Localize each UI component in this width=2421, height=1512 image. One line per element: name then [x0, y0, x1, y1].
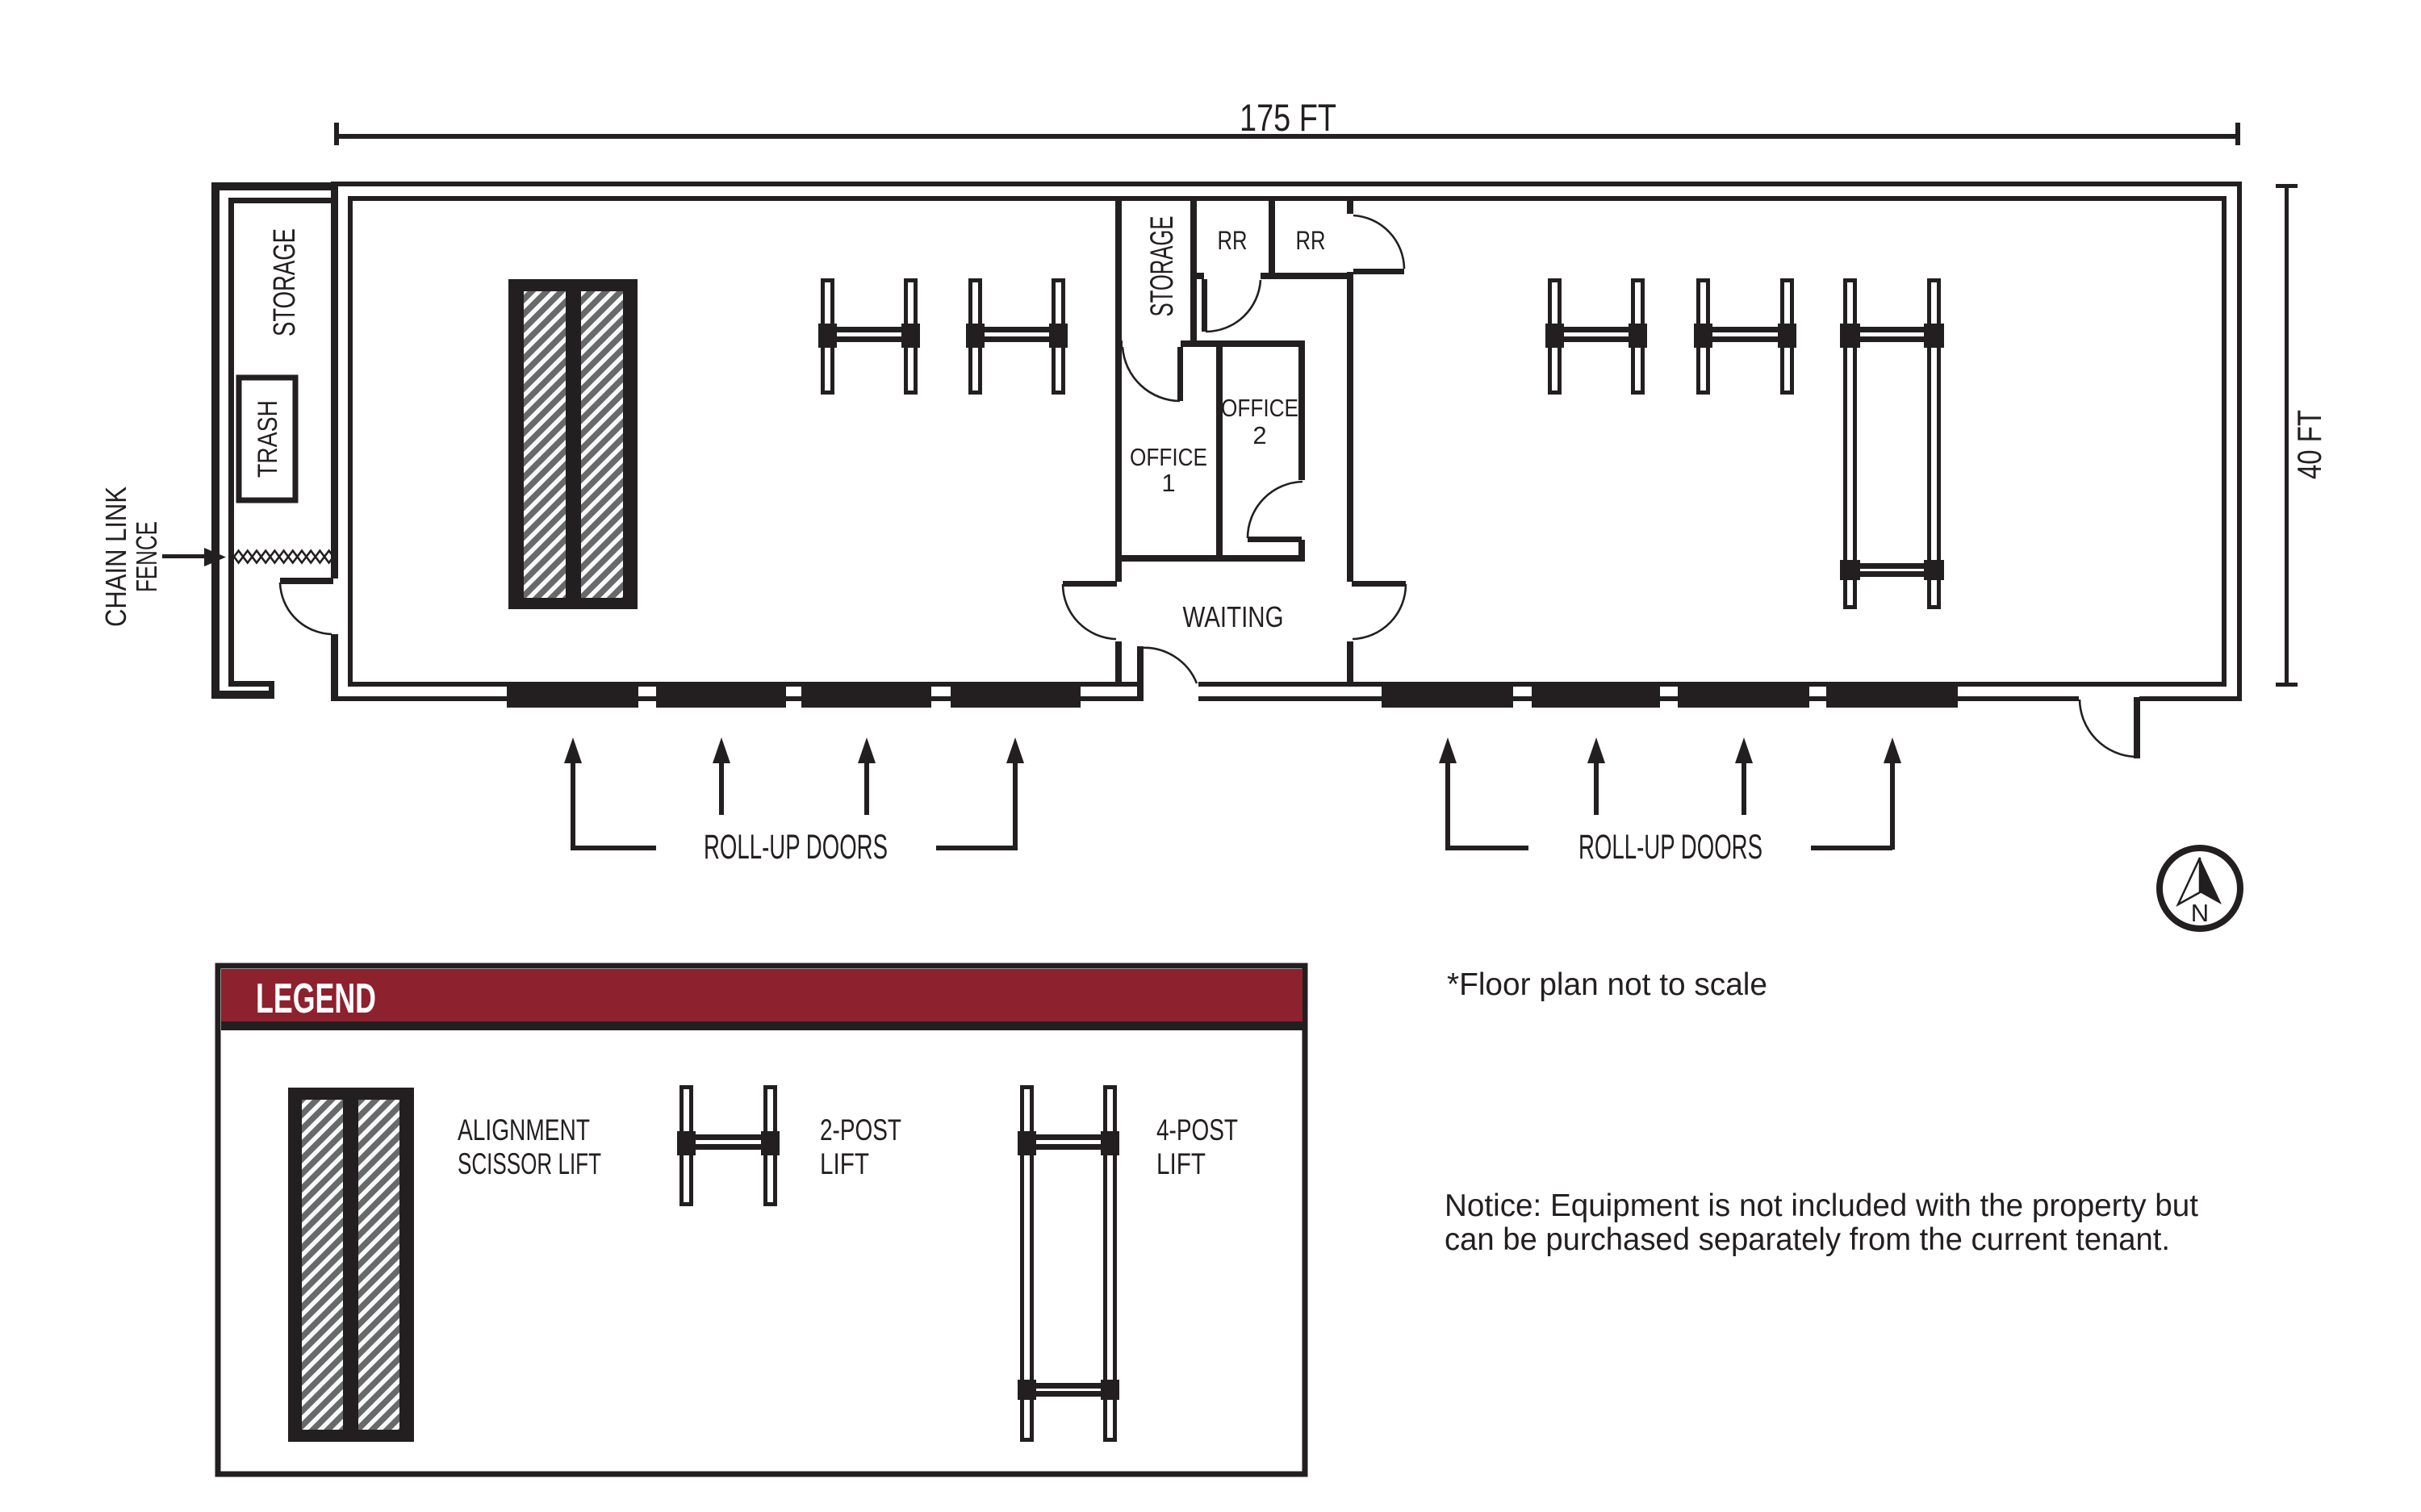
svg-text:RR: RR [1296, 226, 1326, 255]
svg-text:ROLL-UP DOORS: ROLL-UP DOORS [704, 828, 888, 867]
svg-text:1: 1 [1161, 469, 1175, 497]
svg-text:40 FT: 40 FT [2290, 410, 2328, 479]
svg-text:STORAGE: STORAGE [1144, 216, 1180, 317]
svg-text:2-POST: 2-POST [820, 1113, 901, 1147]
svg-text:CHAIN LINK: CHAIN LINK [99, 487, 132, 627]
svg-text:SCISSOR LIFT: SCISSOR LIFT [458, 1147, 601, 1180]
svg-text:LIFT: LIFT [820, 1147, 869, 1180]
svg-text:TRASH: TRASH [253, 400, 283, 478]
svg-text:STORAGE: STORAGE [268, 228, 302, 336]
svg-text:OFFICE: OFFICE [1221, 394, 1298, 422]
svg-text:WAITING: WAITING [1183, 600, 1284, 633]
svg-text:FENCE: FENCE [130, 521, 163, 592]
svg-text:LIFT: LIFT [1156, 1147, 1206, 1180]
svg-text:4-POST: 4-POST [1156, 1113, 1238, 1147]
svg-text:175 FT: 175 FT [1240, 96, 1336, 139]
svg-text:N: N [2191, 899, 2209, 927]
svg-text:RR: RR [1218, 226, 1248, 255]
svg-text:2: 2 [1252, 421, 1266, 449]
svg-text:LEGEND: LEGEND [256, 975, 376, 1022]
svg-text:can be purchased separately fr: can be purchased separately from the cur… [1445, 1222, 2170, 1257]
svg-text:Notice: Equipment is not inclu: Notice: Equipment is not included with t… [1445, 1188, 2198, 1223]
svg-text:ALIGNMENT: ALIGNMENT [458, 1113, 590, 1147]
svg-text:*Floor plan not to scale: *Floor plan not to scale [1447, 967, 1767, 1002]
svg-text:OFFICE: OFFICE [1130, 443, 1207, 471]
svg-text:ROLL-UP DOORS: ROLL-UP DOORS [1578, 828, 1762, 867]
